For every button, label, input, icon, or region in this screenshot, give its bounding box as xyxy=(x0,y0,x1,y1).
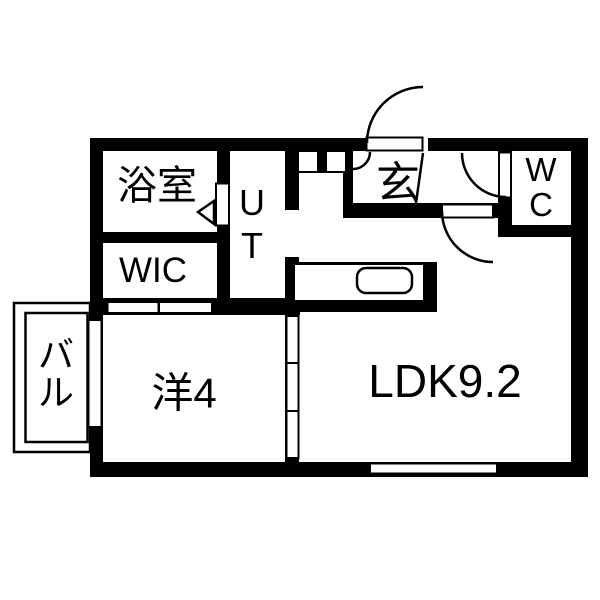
bathroom-folding-door-icon xyxy=(198,201,214,224)
wall-genkan-left xyxy=(343,138,353,206)
balcony-window xyxy=(89,320,102,427)
hall-ldk-door-leaf xyxy=(442,205,493,218)
floor-plan: 浴室 U T WIC 玄 W C 洋4 LDK9.2 バ ル xyxy=(0,0,600,600)
wic-sliding-panel-2 xyxy=(159,302,212,313)
wall-ut-right-upper xyxy=(285,138,299,210)
kitchen-sink xyxy=(357,268,412,293)
partition-sliding-panel-3 xyxy=(287,411,299,458)
balcony-label: バ ル xyxy=(38,336,74,412)
wall-right xyxy=(571,138,588,477)
wic-sliding-panel-1 xyxy=(108,302,159,313)
genkan-cabinet-door-arc xyxy=(353,152,370,169)
wall-bath-wic-divider xyxy=(103,232,217,243)
utility-label: U T xyxy=(239,181,265,267)
western-room-label: 洋4 xyxy=(151,360,216,421)
wall-bottom xyxy=(90,462,588,477)
entrance-door-arc xyxy=(367,87,423,143)
bathroom-door-leaf xyxy=(216,184,229,226)
genkan-label: 玄 xyxy=(376,147,420,211)
wic-label: WIC xyxy=(119,251,187,291)
partition-sliding-panel-1 xyxy=(287,316,299,363)
ldk-south-window xyxy=(370,464,497,474)
ut-doorway-opening xyxy=(285,210,299,257)
shoe-cabinet-inset-2 xyxy=(327,152,345,171)
wall-wc-bottom xyxy=(498,225,588,237)
floor-plan-drawing xyxy=(0,0,600,600)
ldk-label: LDK9.2 xyxy=(368,354,521,408)
bathroom-label: 浴室 xyxy=(117,153,197,211)
utility-label-line1: U xyxy=(239,181,265,224)
utility-label-line2: T xyxy=(239,224,265,267)
wc-label: W C xyxy=(525,152,556,222)
shoe-cabinet-inset-1 xyxy=(299,152,317,171)
balcony-label-line2: ル xyxy=(38,374,74,412)
balcony-label-line1: バ xyxy=(38,336,74,374)
wc-label-line2: C xyxy=(525,187,556,222)
partition-sliding-panel-2 xyxy=(287,363,299,411)
hall-ldk-door-arc xyxy=(442,211,493,262)
wc-label-line1: W xyxy=(525,152,556,187)
wc-door-leaf xyxy=(499,153,511,198)
